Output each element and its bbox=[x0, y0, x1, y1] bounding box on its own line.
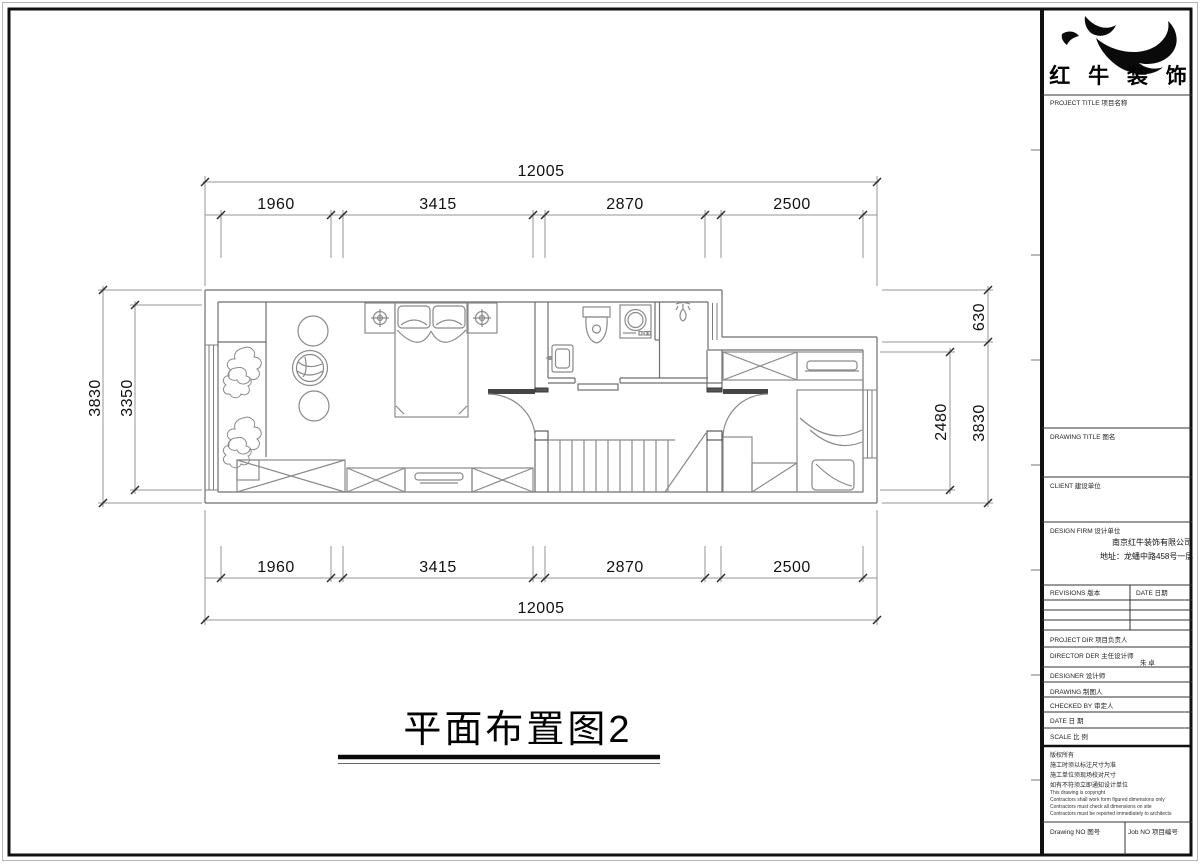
tb-date: DATE 日 期 bbox=[1050, 715, 1083, 725]
tb-copyright-cn-4: 如有不符须立即通知设计单位 bbox=[1050, 780, 1128, 789]
tb-firm-address: 地址：龙蟠中路458号一层 bbox=[1100, 551, 1193, 562]
dim-left-inner: 3350 bbox=[119, 362, 137, 434]
dim-bottom-total: 12005 bbox=[505, 600, 577, 618]
bedroom2-furniture bbox=[723, 352, 863, 492]
plant-icon bbox=[223, 347, 261, 468]
door-bedroom1 bbox=[488, 389, 535, 438]
plan-title: 平面布置图2 bbox=[318, 698, 718, 753]
dim-top-seg-3: 2870 bbox=[589, 196, 661, 214]
bedroom1-furniture bbox=[237, 303, 533, 492]
tb-copyright-en-1: This drawing is copyright bbox=[1050, 790, 1105, 796]
dim-top-seg-1: 1960 bbox=[240, 196, 312, 214]
tb-job-no: Job NO 项目编号 bbox=[1128, 826, 1178, 836]
window-right bbox=[863, 390, 877, 458]
drawing-sheet: 12005 1960 3415 2870 2500 1960 3415 2870… bbox=[0, 0, 1200, 864]
tb-scale: SCALE 比 例 bbox=[1050, 731, 1088, 741]
window-left bbox=[205, 345, 218, 490]
dim-top-seg-2: 3415 bbox=[402, 196, 474, 214]
tb-firm-name: 南京红牛装饰有限公司 bbox=[1112, 537, 1192, 548]
tb-copyright-en-2: Contractors shall work form figured dime… bbox=[1050, 797, 1165, 803]
dim-top-seg-4: 2500 bbox=[756, 196, 828, 214]
dim-right-upper: 630 bbox=[971, 281, 989, 353]
tb-copyright-en-4: Contractors must be reported immediately… bbox=[1050, 811, 1171, 817]
tb-project-dir: PROJECT DIR 项目负责人 bbox=[1050, 634, 1128, 644]
dimension-lines bbox=[98, 176, 993, 625]
dim-bottom-seg-4: 2500 bbox=[756, 559, 828, 577]
bathroom-fixtures bbox=[546, 303, 690, 373]
tb-checked-by: CHECKED BY 审定人 bbox=[1050, 700, 1113, 710]
tb-design-firm: DESIGN FIRM 设计单位 bbox=[1050, 525, 1120, 535]
tb-project-title: PROJECT TITLE 项目名称 bbox=[1050, 97, 1127, 107]
interior-walls bbox=[218, 302, 722, 492]
stairs bbox=[548, 433, 706, 492]
tb-client: CLIENT 建设单位 bbox=[1050, 480, 1101, 490]
tb-designer: DESIGNER 设计师 bbox=[1050, 670, 1105, 680]
title-block-rules bbox=[1042, 95, 1192, 855]
door-jambs bbox=[535, 388, 722, 440]
logo-company-name: 红 牛 装 饰 bbox=[1048, 60, 1194, 90]
tb-drawing-title: DRAWING TITLE 图名 bbox=[1050, 431, 1115, 441]
dim-bottom-seg-1: 1960 bbox=[240, 559, 312, 577]
tb-director: DIRECTOR DER 主任设计师 bbox=[1050, 650, 1134, 660]
dim-left-outer: 3830 bbox=[87, 362, 105, 434]
tb-director-name: 朱 卓 bbox=[1140, 657, 1155, 667]
tb-copyright-cn-2: 施工时须以标注尺寸为准 bbox=[1050, 760, 1116, 769]
tb-date-header: DATE 日期 bbox=[1136, 587, 1168, 597]
tb-revisions: REVISIONS 版本 bbox=[1050, 587, 1100, 597]
tb-copyright-cn-1: 版权所有 bbox=[1050, 750, 1074, 759]
tb-drawing-no: Drawing NO 图号 bbox=[1050, 826, 1100, 836]
dim-right-inner: 2480 bbox=[933, 386, 951, 458]
door-bedroom2 bbox=[723, 389, 768, 438]
dim-right-outer: 3830 bbox=[971, 387, 989, 459]
dim-top-total: 12005 bbox=[505, 163, 577, 181]
title-underline bbox=[338, 757, 660, 764]
dim-bottom-seg-2: 3415 bbox=[402, 559, 474, 577]
tb-copyright-en-3: Contractors must check all dimensions on… bbox=[1050, 804, 1152, 810]
tb-drawing-by: DRAWING 制图人 bbox=[1050, 686, 1102, 696]
dim-bottom-seg-3: 2870 bbox=[589, 559, 661, 577]
window-shower bbox=[713, 303, 718, 340]
floor-plan bbox=[98, 176, 993, 764]
tb-copyright-cn-3: 施工单位须现场校对尺寸 bbox=[1050, 770, 1116, 779]
